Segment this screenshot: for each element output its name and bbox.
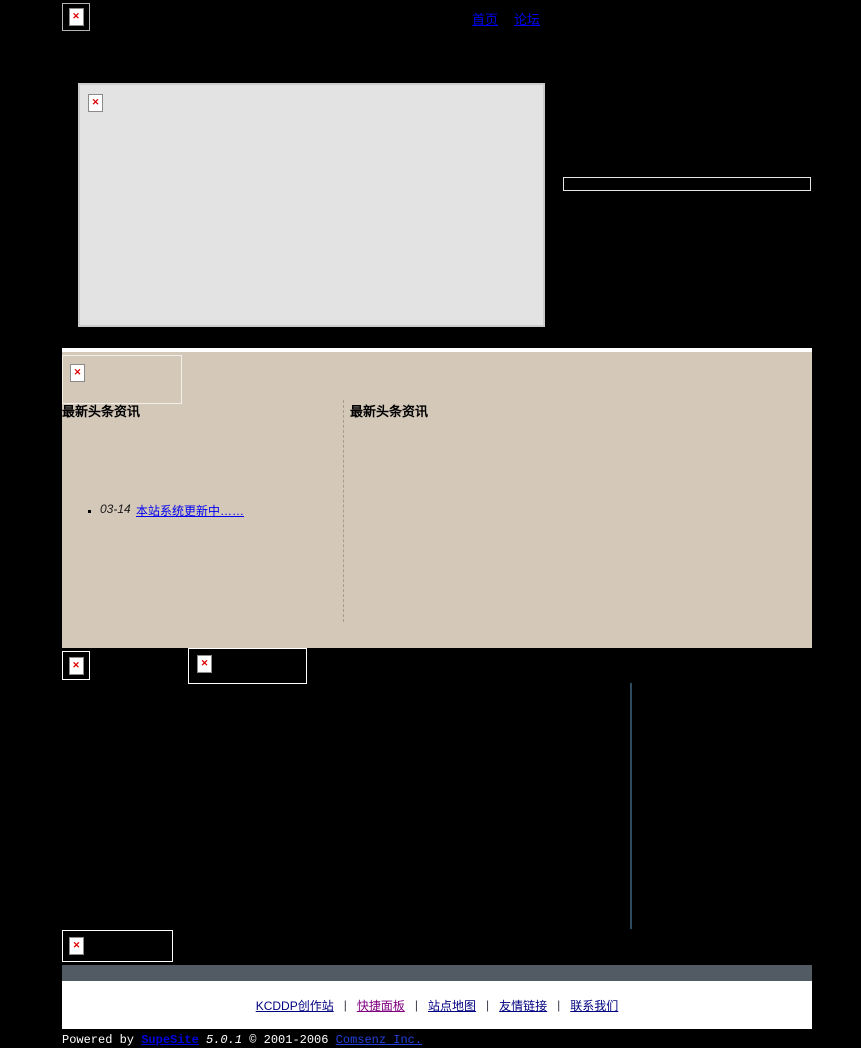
- news-item-date: 03-14: [100, 502, 131, 516]
- small-broken-image-box[interactable]: ✕: [62, 651, 90, 680]
- broken-image-icon: ✕: [70, 364, 85, 382]
- broken-image-icon: ✕: [88, 94, 103, 112]
- bullet-icon: [88, 510, 91, 513]
- news-item-link[interactable]: 本站系统更新中……: [136, 502, 244, 519]
- supesite-link[interactable]: SupeSite: [141, 1033, 199, 1047]
- site-logo-broken-image[interactable]: ✕: [62, 3, 90, 31]
- separator: |: [486, 998, 489, 1012]
- powered-prefix: Powered by: [62, 1033, 134, 1047]
- powered-by-line: Powered by SupeSite 5.0.1 © 2001-2006 Co…: [62, 1033, 422, 1047]
- news-right-column-header: 最新头条资讯: [350, 401, 428, 420]
- vertical-divider-line: [630, 683, 632, 929]
- footer-link-contact-us[interactable]: 联系我们: [570, 997, 618, 1014]
- news-banner-broken-image[interactable]: ✕: [62, 355, 182, 404]
- footer-gray-bar: [62, 965, 812, 981]
- nav-link-forum[interactable]: 论坛: [514, 9, 540, 28]
- broken-image-icon: ✕: [197, 655, 212, 673]
- separator: |: [557, 998, 560, 1012]
- page: { "icons": { "broken_image": "✕" }, "nav…: [0, 0, 861, 1048]
- broken-image-icon: ✕: [69, 8, 84, 26]
- broken-image-icon: ✕: [69, 937, 84, 955]
- separator: |: [415, 998, 418, 1012]
- footer-link-sitemap[interactable]: 站点地图: [428, 997, 476, 1014]
- nav-link-home[interactable]: 首页: [472, 9, 498, 28]
- mid-broken-image-box[interactable]: ✕: [188, 648, 307, 684]
- bottom-broken-image-box[interactable]: ✕: [62, 930, 173, 962]
- footer-links-bar: KCDDP创作站 | 快捷面板 | 站点地图 | 友情链接 | 联系我们: [62, 981, 812, 1029]
- footer-link-quick-panel[interactable]: 快捷面板: [357, 997, 405, 1014]
- footer-link-friend-links[interactable]: 友情链接: [499, 997, 547, 1014]
- separator: |: [344, 998, 347, 1012]
- version-label: 5.0.1: [206, 1033, 242, 1047]
- broken-image-icon: ✕: [69, 657, 84, 675]
- footer-link-kcddp[interactable]: KCDDP创作站: [256, 997, 334, 1014]
- comsenz-link[interactable]: Comsenz Inc.: [336, 1033, 422, 1047]
- news-section: ✕ 最新头条资讯 最新头条资讯 03-14 本站系统更新中……: [62, 348, 812, 648]
- announcement-marquee-box: [563, 177, 811, 191]
- main-banner-panel: ✕: [78, 83, 545, 327]
- column-divider: [343, 400, 344, 622]
- copyright-label: © 2001-2006: [249, 1033, 328, 1047]
- news-left-column-header: 最新头条资讯: [62, 401, 140, 420]
